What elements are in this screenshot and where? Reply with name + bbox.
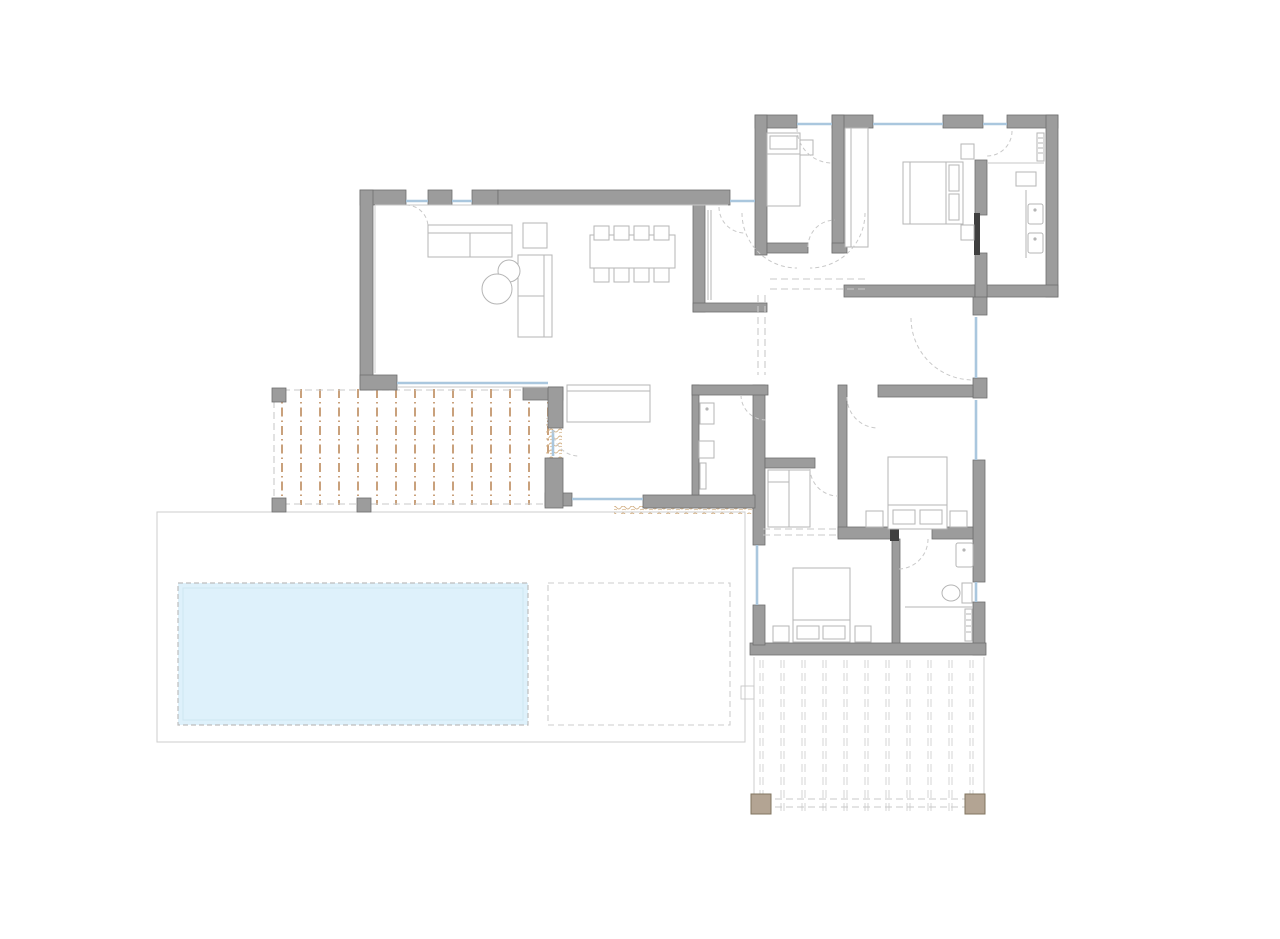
swimming-pool xyxy=(178,583,528,725)
deck-end-dashes xyxy=(753,799,985,807)
bath-cabinet xyxy=(1016,172,1036,186)
toilet-tank xyxy=(962,583,972,603)
pergola-post xyxy=(272,388,286,402)
nightstand xyxy=(866,511,883,527)
deck-lines xyxy=(760,660,973,811)
coffee-table-large xyxy=(482,274,512,304)
utility-room xyxy=(699,403,714,489)
sliding-door xyxy=(974,213,980,255)
pool-terrace xyxy=(157,512,745,742)
nightstand xyxy=(961,144,974,159)
pillow xyxy=(823,626,845,639)
nightstand xyxy=(950,511,967,527)
sink xyxy=(1028,233,1043,253)
pillow xyxy=(893,510,915,524)
sun-deck-outline xyxy=(548,583,730,725)
rear-deck xyxy=(741,657,985,814)
washing-machine xyxy=(699,441,714,458)
pillow xyxy=(949,165,959,191)
deck-post xyxy=(965,794,985,814)
side-table xyxy=(523,223,547,248)
nightstand xyxy=(773,626,789,642)
living-dining-room xyxy=(428,223,675,337)
bedroom-1 xyxy=(767,133,813,206)
pergola-terrace xyxy=(272,388,560,512)
ensuite-bathroom xyxy=(1016,133,1044,258)
deck-post xyxy=(751,794,771,814)
dining-chairs-bottom xyxy=(594,268,669,282)
pergola-post xyxy=(272,498,286,512)
sink xyxy=(1028,204,1043,224)
pergola-post xyxy=(357,498,371,512)
bedroom-2 xyxy=(866,457,967,529)
corridor xyxy=(768,470,810,527)
sink xyxy=(956,543,973,567)
wardrobe xyxy=(845,128,868,247)
toilet xyxy=(942,585,960,601)
pillow xyxy=(949,194,959,220)
pillow xyxy=(797,626,819,639)
pantry xyxy=(708,210,711,300)
pantry-shelves xyxy=(708,210,711,300)
pergola-lines xyxy=(282,389,548,505)
utility-cabinet xyxy=(700,463,706,489)
floor-plan xyxy=(0,0,1280,939)
utility-sink xyxy=(700,403,714,424)
master-bedroom xyxy=(845,128,974,247)
bedside-table xyxy=(800,140,813,155)
nightstand xyxy=(961,225,974,240)
kitchen xyxy=(567,385,650,422)
shower xyxy=(1037,133,1044,161)
bedroom-3 xyxy=(773,568,871,642)
bathroom xyxy=(905,543,973,641)
nightstand xyxy=(855,626,871,642)
pillow xyxy=(920,510,942,524)
pillow xyxy=(770,136,797,149)
